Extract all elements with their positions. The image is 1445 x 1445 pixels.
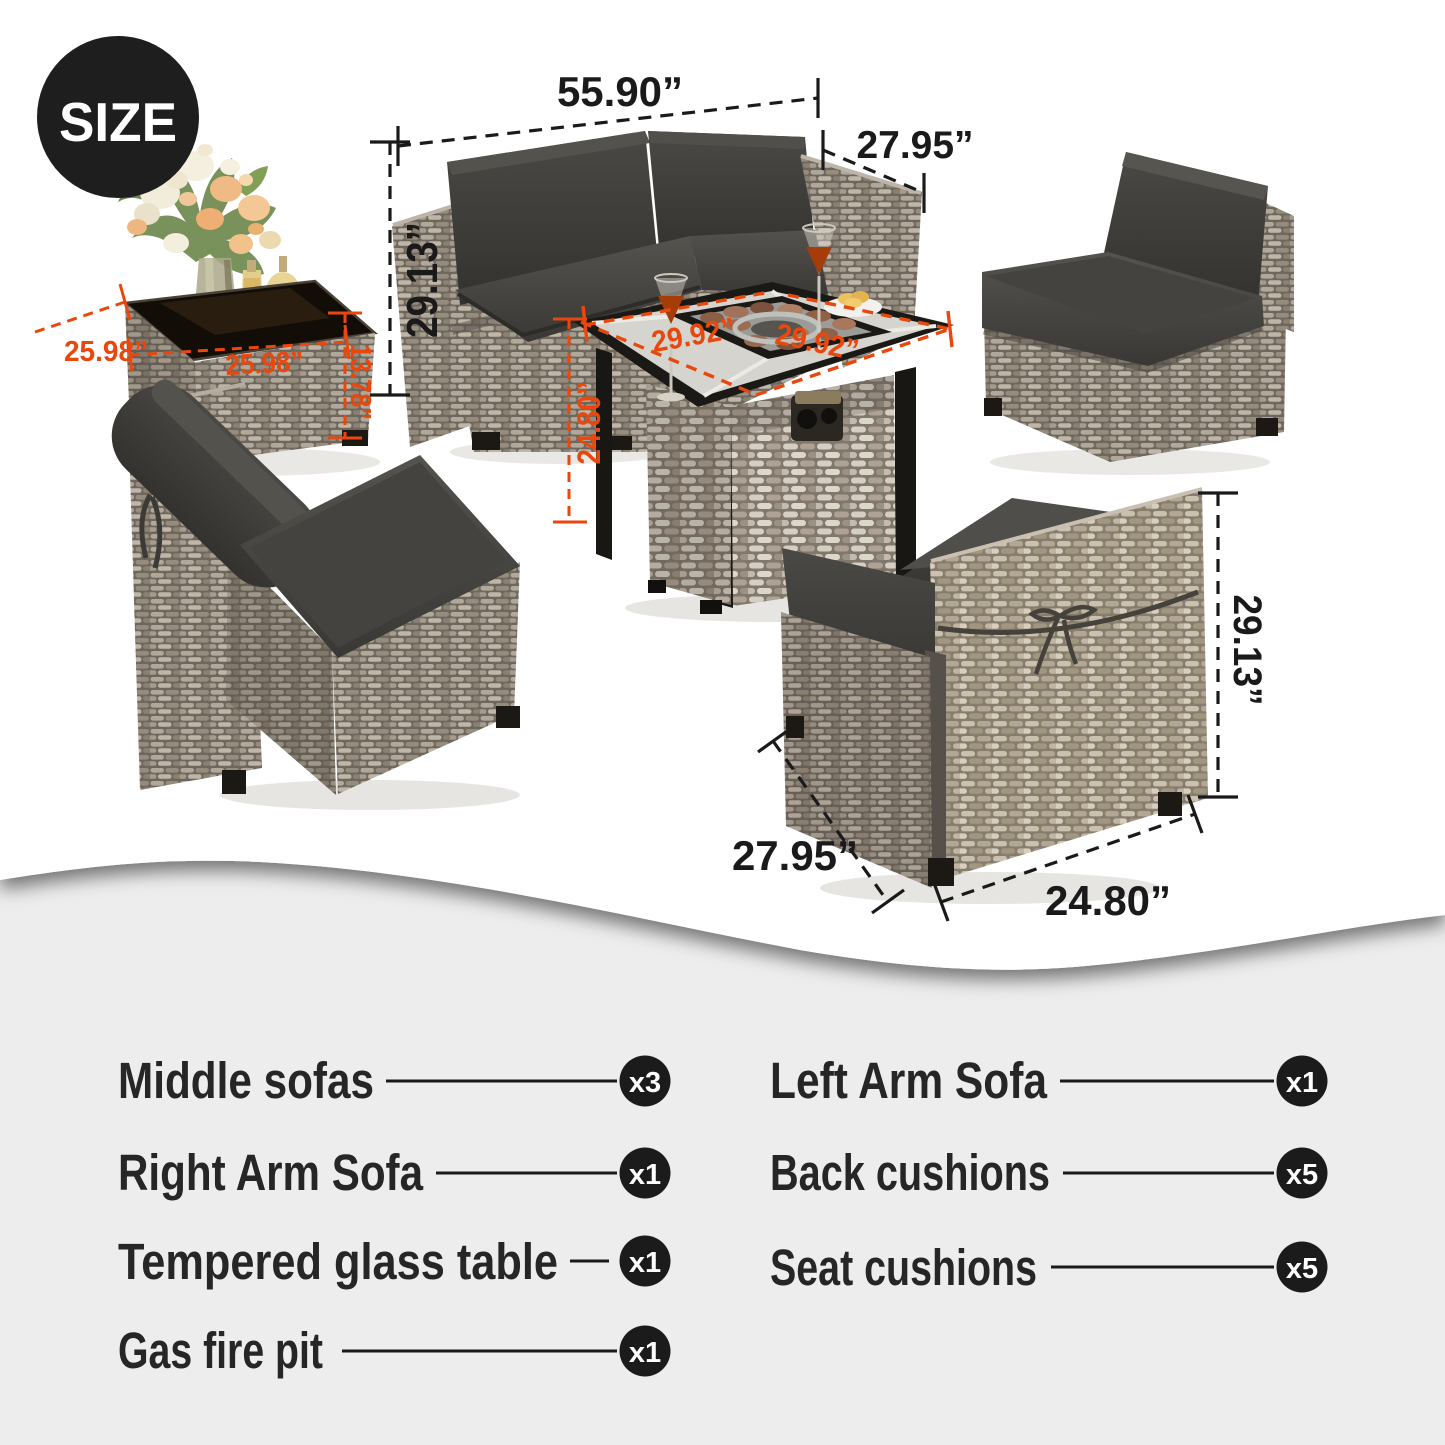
svg-text:24.80”: 24.80”	[571, 382, 607, 465]
svg-text:25.98”: 25.98”	[225, 346, 305, 382]
svg-text:x5: x5	[1286, 1159, 1318, 1191]
svg-text:25.98”: 25.98”	[64, 336, 148, 368]
svg-text:Tempered glass table: Tempered glass table	[118, 1233, 558, 1290]
svg-text:x1: x1	[629, 1337, 661, 1369]
svg-text:x5: x5	[1286, 1253, 1318, 1285]
svg-text:29.13”: 29.13”	[1225, 595, 1269, 706]
svg-text:27.95”: 27.95”	[732, 832, 858, 879]
svg-text:Left Arm Sofa: Left Arm Sofa	[770, 1052, 1048, 1109]
svg-text:27.95”: 27.95”	[856, 124, 973, 167]
svg-text:13.78”: 13.78”	[344, 344, 376, 420]
svg-text:Seat cushions: Seat cushions	[770, 1239, 1037, 1296]
svg-text:24.80”: 24.80”	[1045, 877, 1171, 924]
svg-text:x1: x1	[629, 1159, 661, 1191]
svg-text:Back cushions: Back cushions	[770, 1144, 1050, 1201]
svg-text:SIZE: SIZE	[59, 91, 177, 153]
svg-text:Middle sofas: Middle sofas	[118, 1052, 374, 1109]
svg-text:Right Arm Sofa: Right Arm Sofa	[118, 1144, 424, 1201]
svg-text:x1: x1	[629, 1247, 661, 1279]
svg-text:Gas fire pit: Gas fire pit	[118, 1322, 323, 1379]
svg-text:55.90”: 55.90”	[557, 68, 683, 115]
svg-text:x3: x3	[629, 1067, 661, 1099]
svg-text:29.13”: 29.13”	[398, 222, 447, 338]
svg-text:x1: x1	[1286, 1067, 1318, 1099]
